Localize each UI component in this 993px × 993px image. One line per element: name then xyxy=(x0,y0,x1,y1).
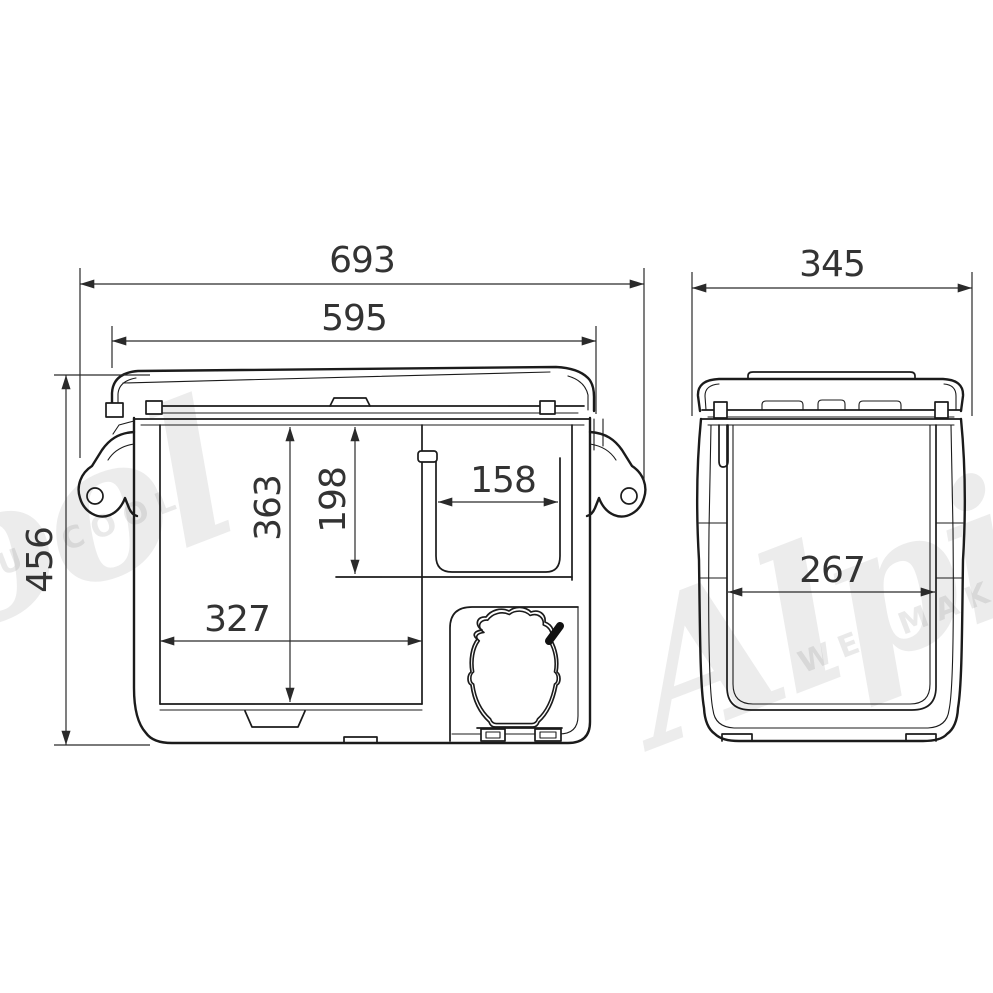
front-bottom-tray-recess xyxy=(245,711,305,727)
side-lid-clip-left xyxy=(714,402,727,418)
dim-345-extension-lines xyxy=(692,272,972,416)
compressor-foot-right xyxy=(535,729,561,741)
front-view xyxy=(79,367,646,743)
dim-345-label: 345 xyxy=(799,244,865,285)
compressor-body-inner-line xyxy=(471,611,557,723)
dim-327-label: 327 xyxy=(204,599,270,640)
front-lid-clip-right xyxy=(540,401,555,414)
cooler-dimension-drawing: 693 595 345 456 363 198 158 327 xyxy=(0,0,993,993)
front-lid-clip-left xyxy=(146,401,162,414)
side-gasket-bump-1 xyxy=(762,401,803,410)
compressor-foot-left xyxy=(481,729,505,741)
front-hinge-bracket-left xyxy=(106,403,123,417)
dim-158-label: 158 xyxy=(470,460,536,501)
dim-595-label: 595 xyxy=(321,298,387,339)
handle-left-pivot-hole xyxy=(87,488,103,504)
technical-drawing-page: Alpicool WE MAKE YOU COOL Alpicool WE MA… xyxy=(0,0,993,993)
front-lid-latch xyxy=(330,398,370,406)
side-gasket-bump-3 xyxy=(859,401,901,410)
front-lid-outline xyxy=(112,367,594,411)
side-lid-outline xyxy=(698,379,963,411)
dim-267-label: 267 xyxy=(799,550,865,591)
front-lid-seam xyxy=(123,372,550,383)
dim-363-label: 363 xyxy=(248,475,289,541)
handle-left-inner-line xyxy=(108,444,134,460)
compressor-pipe-stub xyxy=(549,626,560,641)
dim-456-extension-lines xyxy=(54,375,150,745)
side-lid-clip-right xyxy=(935,402,948,418)
dim-693-label: 693 xyxy=(329,240,395,281)
handle-right-pivot-hole xyxy=(621,488,637,504)
dim-198-label: 198 xyxy=(313,467,354,533)
dimensions: 693 595 345 456 363 198 158 327 xyxy=(20,240,972,745)
front-lid-inner-right xyxy=(568,376,588,410)
side-gasket-bump-2 xyxy=(818,400,845,410)
basket-hook xyxy=(418,451,437,462)
dim-456-label: 456 xyxy=(20,527,61,593)
